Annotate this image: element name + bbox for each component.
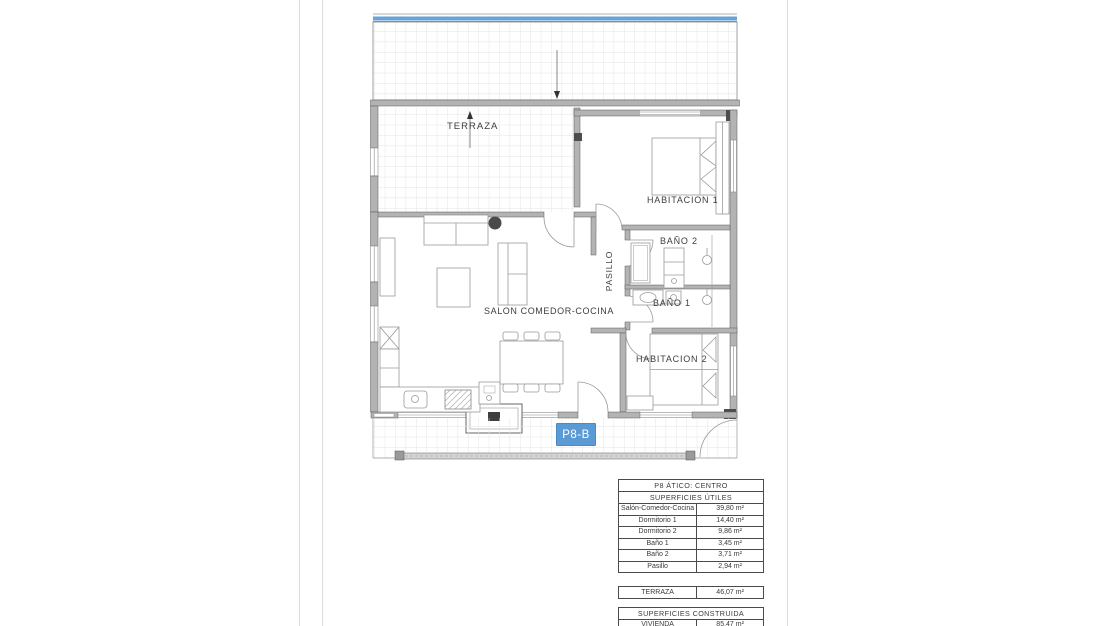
- room-label-habitacion-2: HABITACION 2: [636, 354, 707, 364]
- table-title: SUPERFICIES CONSTRUIDA: [619, 608, 763, 620]
- cell-label: TERRAZA: [619, 587, 697, 598]
- roof-terrace: [371, 14, 740, 106]
- cell-label: Baño 2: [619, 550, 697, 561]
- cell-value: 46,07 m²: [697, 587, 763, 598]
- floorplan-sheet: TERRAZA HABITACION 1 BAÑO 2 BAÑO 1 PASIL…: [0, 0, 1110, 626]
- cell-value: 39,80 m²: [697, 504, 763, 515]
- room-label-bano-1: BAÑO 1: [653, 298, 691, 308]
- room-label-habitacion-1: HABITACION 1: [647, 195, 718, 205]
- cell-value: 85,47 m²: [697, 620, 763, 626]
- cell-label: VIVIENDA: [619, 620, 697, 626]
- unit-badge: P8-B: [556, 423, 596, 446]
- lower-terrace: [373, 418, 737, 460]
- built-surfaces-table: SUPERFICIES CONSTRUIDA VIVIENDA 85,47 m²: [618, 607, 764, 626]
- surfaces-panel: P8 ÁTICO: CENTRO SUPERFICIES ÚTILES Saló…: [618, 479, 764, 626]
- useful-surfaces-table: P8 ÁTICO: CENTRO SUPERFICIES ÚTILES Saló…: [618, 479, 764, 573]
- cell-label: Pasillo: [619, 562, 697, 573]
- table-row: Baño 2 3,71 m²: [619, 550, 763, 562]
- cell-value: 2,94 m²: [697, 562, 763, 573]
- table-row: Baño 1 3,45 m²: [619, 539, 763, 551]
- cell-label: Salón-Comedor-Cocina: [619, 504, 697, 515]
- room-label-terraza: TERRAZA: [447, 121, 498, 132]
- table-title: P8 ÁTICO: CENTRO: [619, 480, 763, 492]
- blue-edge-line: [373, 17, 737, 21]
- room-label-pasillo: PASILLO: [604, 251, 614, 291]
- cell-label: Baño 1: [619, 539, 697, 550]
- table-row: Dormitorio 2 9,86 m²: [619, 527, 763, 539]
- cell-value: 9,86 m²: [697, 527, 763, 538]
- room-label-bano-2: BAÑO 2: [660, 236, 698, 246]
- cell-label: Dormitorio 2: [619, 527, 697, 538]
- cell-value: 3,71 m²: [697, 550, 763, 561]
- table-row: Salón-Comedor-Cocina 39,80 m²: [619, 504, 763, 516]
- column: [489, 217, 502, 230]
- terrace-surface-table: TERRAZA 46,07 m²: [618, 586, 764, 599]
- table-row: Pasillo 2,94 m²: [619, 562, 763, 573]
- room-label-salon: SALON COMEDOR-COCINA: [484, 306, 614, 316]
- table-row: Dormitorio 1 14,40 m²: [619, 516, 763, 528]
- cell-value: 3,45 m²: [697, 539, 763, 550]
- table-subtitle: SUPERFICIES ÚTILES: [619, 492, 763, 504]
- table-row: TERRAZA 46,07 m²: [619, 587, 763, 598]
- stove: [445, 390, 471, 409]
- cell-value: 14,40 m²: [697, 516, 763, 527]
- cell-label: Dormitorio 1: [619, 516, 697, 527]
- table-row: VIVIENDA 85,47 m²: [619, 620, 763, 626]
